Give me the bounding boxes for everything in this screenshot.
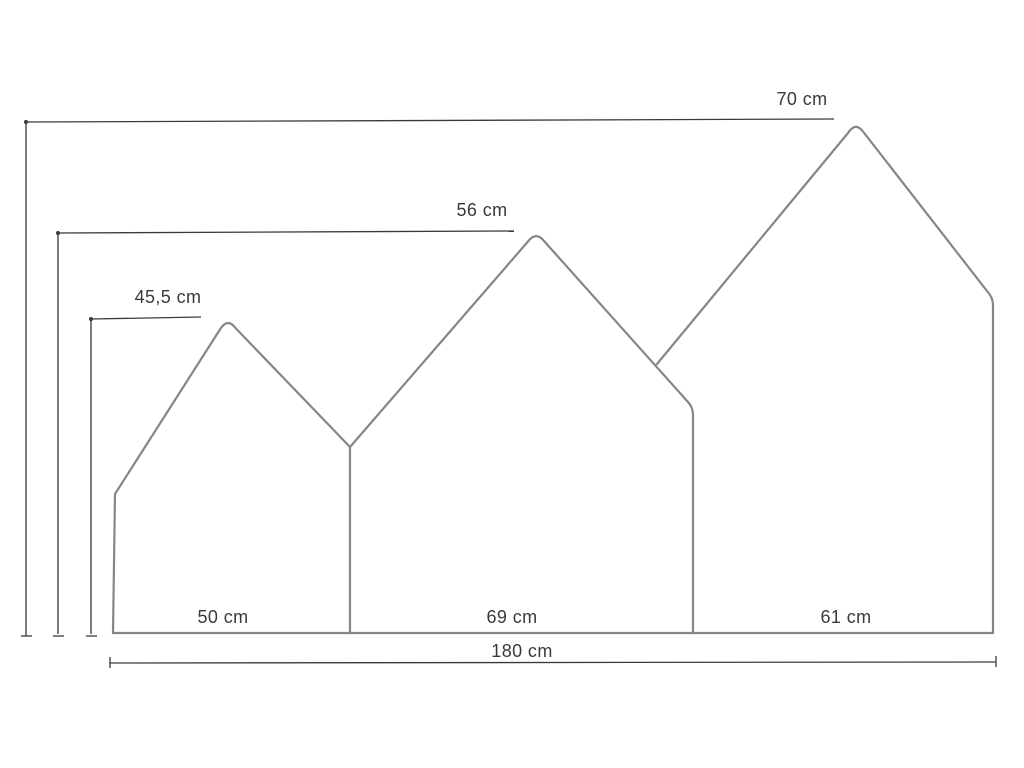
right-house-outline	[657, 127, 993, 633]
label-right-house-height: 70 cm	[776, 90, 827, 108]
label-middle-house-height: 56 cm	[456, 201, 507, 219]
height-line-56-horizontal	[58, 231, 514, 233]
total-width-line	[110, 662, 996, 663]
height-dimension-lines	[21, 119, 834, 636]
height-line-45-horizontal	[91, 317, 201, 319]
label-total-width: 180 cm	[491, 642, 552, 660]
corner-dot-45	[89, 317, 93, 321]
house-outlines	[113, 127, 993, 633]
label-right-house-width: 61 cm	[820, 608, 871, 626]
label-left-house-width: 50 cm	[197, 608, 248, 626]
label-left-house-height: 45,5 cm	[135, 288, 202, 306]
corner-dot-70	[24, 120, 28, 124]
middle-house-outline	[350, 236, 693, 633]
diagram-canvas: 70 cm 56 cm 45,5 cm 50 cm 69 cm 61 cm 18…	[0, 0, 1024, 768]
corner-dot-56	[56, 231, 60, 235]
left-house-outline	[113, 323, 350, 633]
label-middle-house-width: 69 cm	[486, 608, 537, 626]
height-line-70-horizontal	[26, 119, 834, 122]
total-width-dimension-line	[110, 656, 996, 668]
